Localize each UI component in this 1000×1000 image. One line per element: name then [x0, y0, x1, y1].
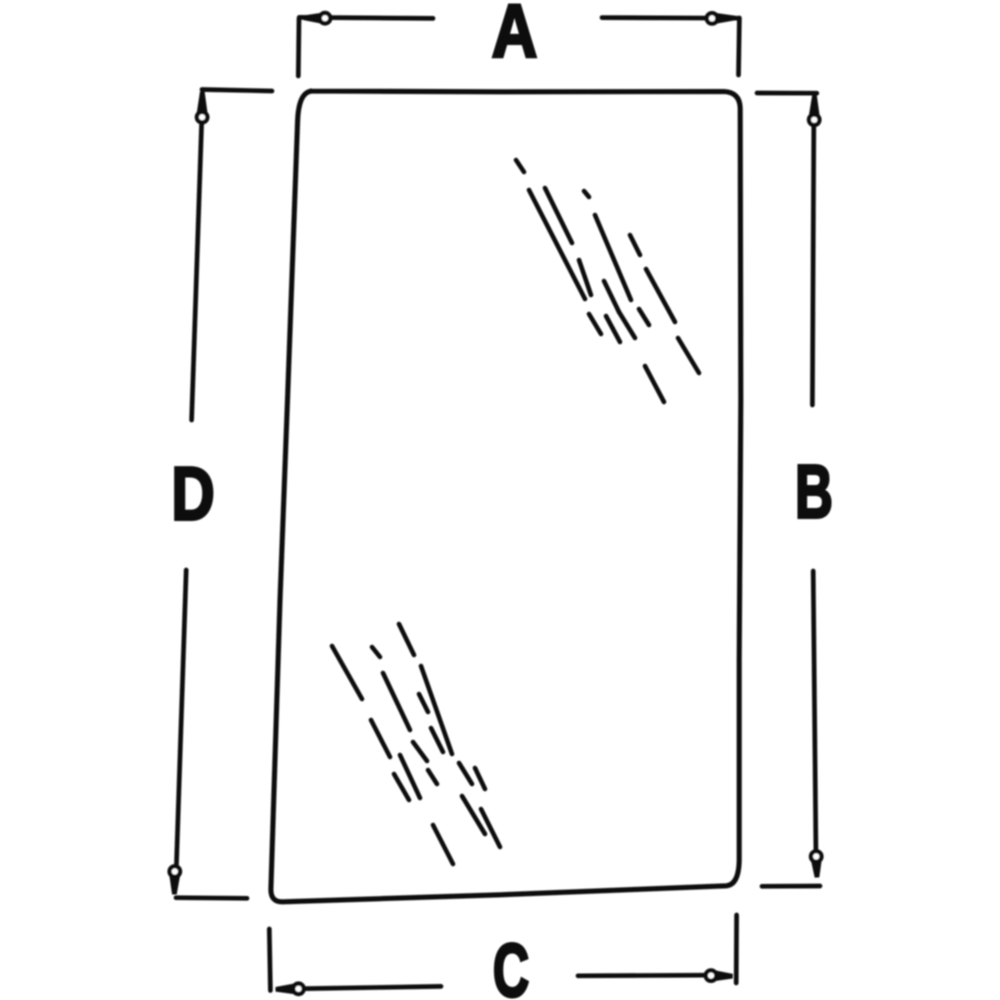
svg-text:C: C [493, 928, 529, 1000]
svg-text:D: D [171, 453, 214, 536]
svg-text:B: B [795, 449, 833, 534]
svg-text:A: A [492, 0, 537, 73]
